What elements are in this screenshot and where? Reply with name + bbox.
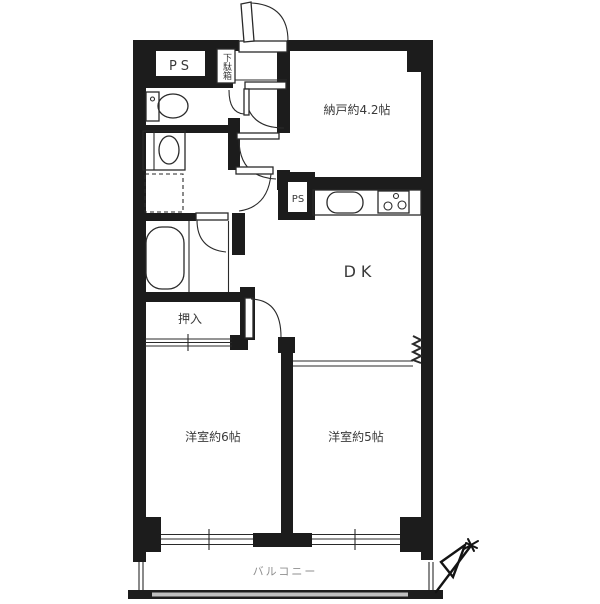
ps-top-label: PS [169,59,193,74]
toilet-flush-knob [151,97,155,101]
floor-plan: PS 下駄箱 納戸約4.2帖 PS DK 押入 洋室約6帖 洋室約5帖 バルコニ… [0,0,600,600]
washbasin-bowl [159,136,179,164]
kitchen-sink [327,192,363,213]
washing-machine-space [145,174,183,212]
dk-label: DK [344,262,377,281]
toilet [146,92,188,121]
accordion-door-icon [413,336,421,363]
entrance-threshold [239,41,287,52]
floor-plan-drawing: PS 下駄箱 納戸約4.2帖 PS DK 押入 洋室約6帖 洋室約5帖 バルコニ… [0,0,600,600]
toilet-tank [146,92,159,121]
storage-door-leaf [237,133,279,139]
washroom-door-leaf [236,167,273,174]
north-arrow-icon [436,539,478,592]
toilet-bowl [158,94,188,118]
stove-burner-right [398,201,406,209]
storage-room-label: 納戸約4.2帖 [323,102,390,117]
bath-door-leaf [196,213,228,220]
wall-right [421,40,433,560]
wall-step-right [400,517,421,552]
closet-label: 押入 [178,312,202,326]
kitchen [313,190,421,215]
ps-kitchen-label: PS [292,194,304,205]
wall-storage-notch [407,51,433,72]
wall-bottom-center [253,533,312,547]
wall-corridor-left [228,118,240,170]
balcony-label: バルコニー [253,565,318,578]
toilet-door-leaf [244,89,249,115]
wall-top-right [287,40,433,51]
bathroom [146,221,229,292]
window-room5 [312,529,400,550]
wall-storage-left-upper [277,51,290,133]
washbasin [143,131,185,170]
western-room5-label: 洋室約5帖 [328,429,384,444]
window-room6 [161,529,253,550]
western-room6-label: 洋室約6帖 [185,429,241,444]
wall-corridor-stub [232,213,245,255]
shoe-cabinet-label: 下駄箱 [221,53,232,81]
front-door-swing-arc [251,3,288,41]
wall-step-left [146,517,161,552]
toilet-door-arc [229,90,244,114]
hall-door-leaf [245,82,286,89]
bath-door-arc [197,220,226,252]
stove-burner-small [394,194,399,199]
dk-partition [293,336,421,366]
bathtub [146,227,184,289]
room6-door-arc [251,299,281,337]
balcony-railing-stripe [152,593,408,597]
wall-toilet-bottom [133,125,228,133]
washroom-door-arc [239,174,271,211]
room6-door-leaf [245,298,253,338]
wall-between-rooms [281,337,293,533]
wall-washroom-bottom [133,213,196,221]
closet-sliding-door [145,334,232,351]
front-door-leaf [241,2,254,42]
walls [133,40,433,562]
wall-bath-bottom [133,292,250,302]
stove-burner-left [384,202,392,210]
